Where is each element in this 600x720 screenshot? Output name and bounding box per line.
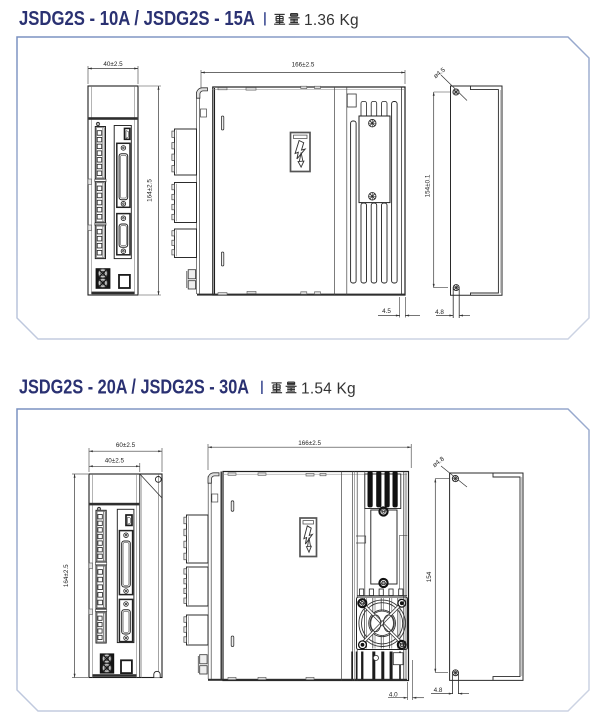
svg-text:166±2.5: 166±2.5: [292, 62, 315, 69]
svg-text:4.5: 4.5: [382, 308, 391, 315]
svg-text:166±2.5: 166±2.5: [298, 440, 321, 447]
svg-text:154±0.1: 154±0.1: [424, 174, 431, 197]
svg-text:4.0: 4.0: [389, 692, 398, 699]
svg-text:4.8: 4.8: [434, 687, 443, 694]
svg-text:1.36 Kg: 1.36 Kg: [304, 12, 359, 29]
svg-text:164±2.5: 164±2.5: [63, 564, 70, 587]
svg-text:40±2.5: 40±2.5: [103, 61, 123, 68]
svg-text:164±2.5: 164±2.5: [147, 179, 154, 202]
svg-text:154: 154: [426, 571, 433, 582]
svg-text:40±2.5: 40±2.5: [105, 457, 125, 464]
svg-text:60±2.5: 60±2.5: [116, 442, 136, 449]
svg-text:1.54 Kg: 1.54 Kg: [301, 381, 356, 398]
svg-text:JSDG2S - 10A / JSDG2S - 15A: JSDG2S - 10A / JSDG2S - 15A: [19, 8, 255, 30]
svg-text:4.8: 4.8: [435, 309, 444, 316]
svg-text:JSDG2S - 20A / JSDG2S - 30A: JSDG2S - 20A / JSDG2S - 30A: [19, 377, 249, 399]
